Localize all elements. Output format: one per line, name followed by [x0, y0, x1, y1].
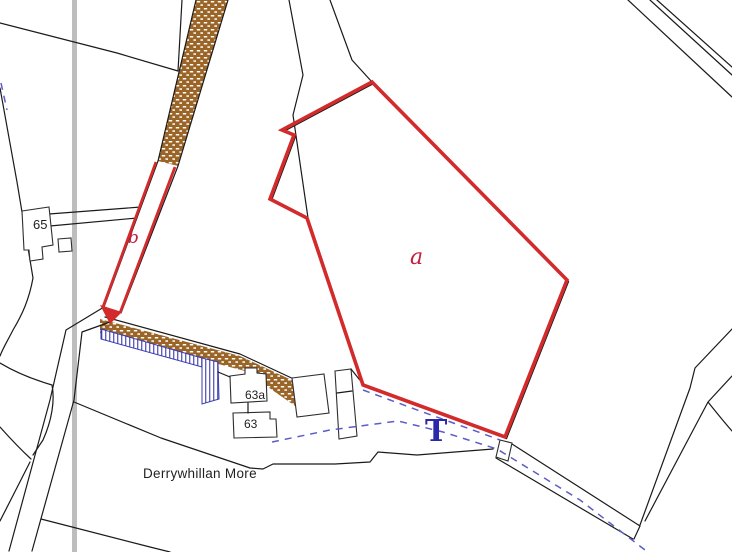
building-63-label: 63: [244, 417, 258, 431]
parcel-a-letter: a: [410, 245, 423, 270]
gate-structure: [496, 440, 512, 461]
drain-dashed-lines: [1, 83, 645, 550]
building-65: [22, 207, 53, 261]
driveway-65: [49, 207, 141, 226]
building-65-outbuilding: [58, 238, 72, 252]
boundary-left-curves: [0, 88, 53, 521]
boundary-under-parcel: [289, 0, 372, 218]
boundary-east: [640, 329, 732, 525]
t-marker: T: [425, 414, 448, 449]
road-top-right: [628, 0, 732, 97]
map-canvas: 65 63a 63 Derrywhillan More a b T: [0, 0, 732, 552]
building-65-label: 65: [33, 217, 47, 232]
lane-southeast: [496, 444, 640, 539]
road-hatch-top: [158, 0, 228, 166]
os-map: 65 63a 63 Derrywhillan More a b T: [0, 0, 732, 552]
building-63a-label: 63a: [245, 388, 265, 402]
parcel-b-letter: b: [128, 228, 139, 248]
building-unlabelled-1: [292, 374, 329, 417]
townland-label: Derrywhillan More: [143, 466, 257, 481]
boundary-top-left: [0, 0, 182, 71]
